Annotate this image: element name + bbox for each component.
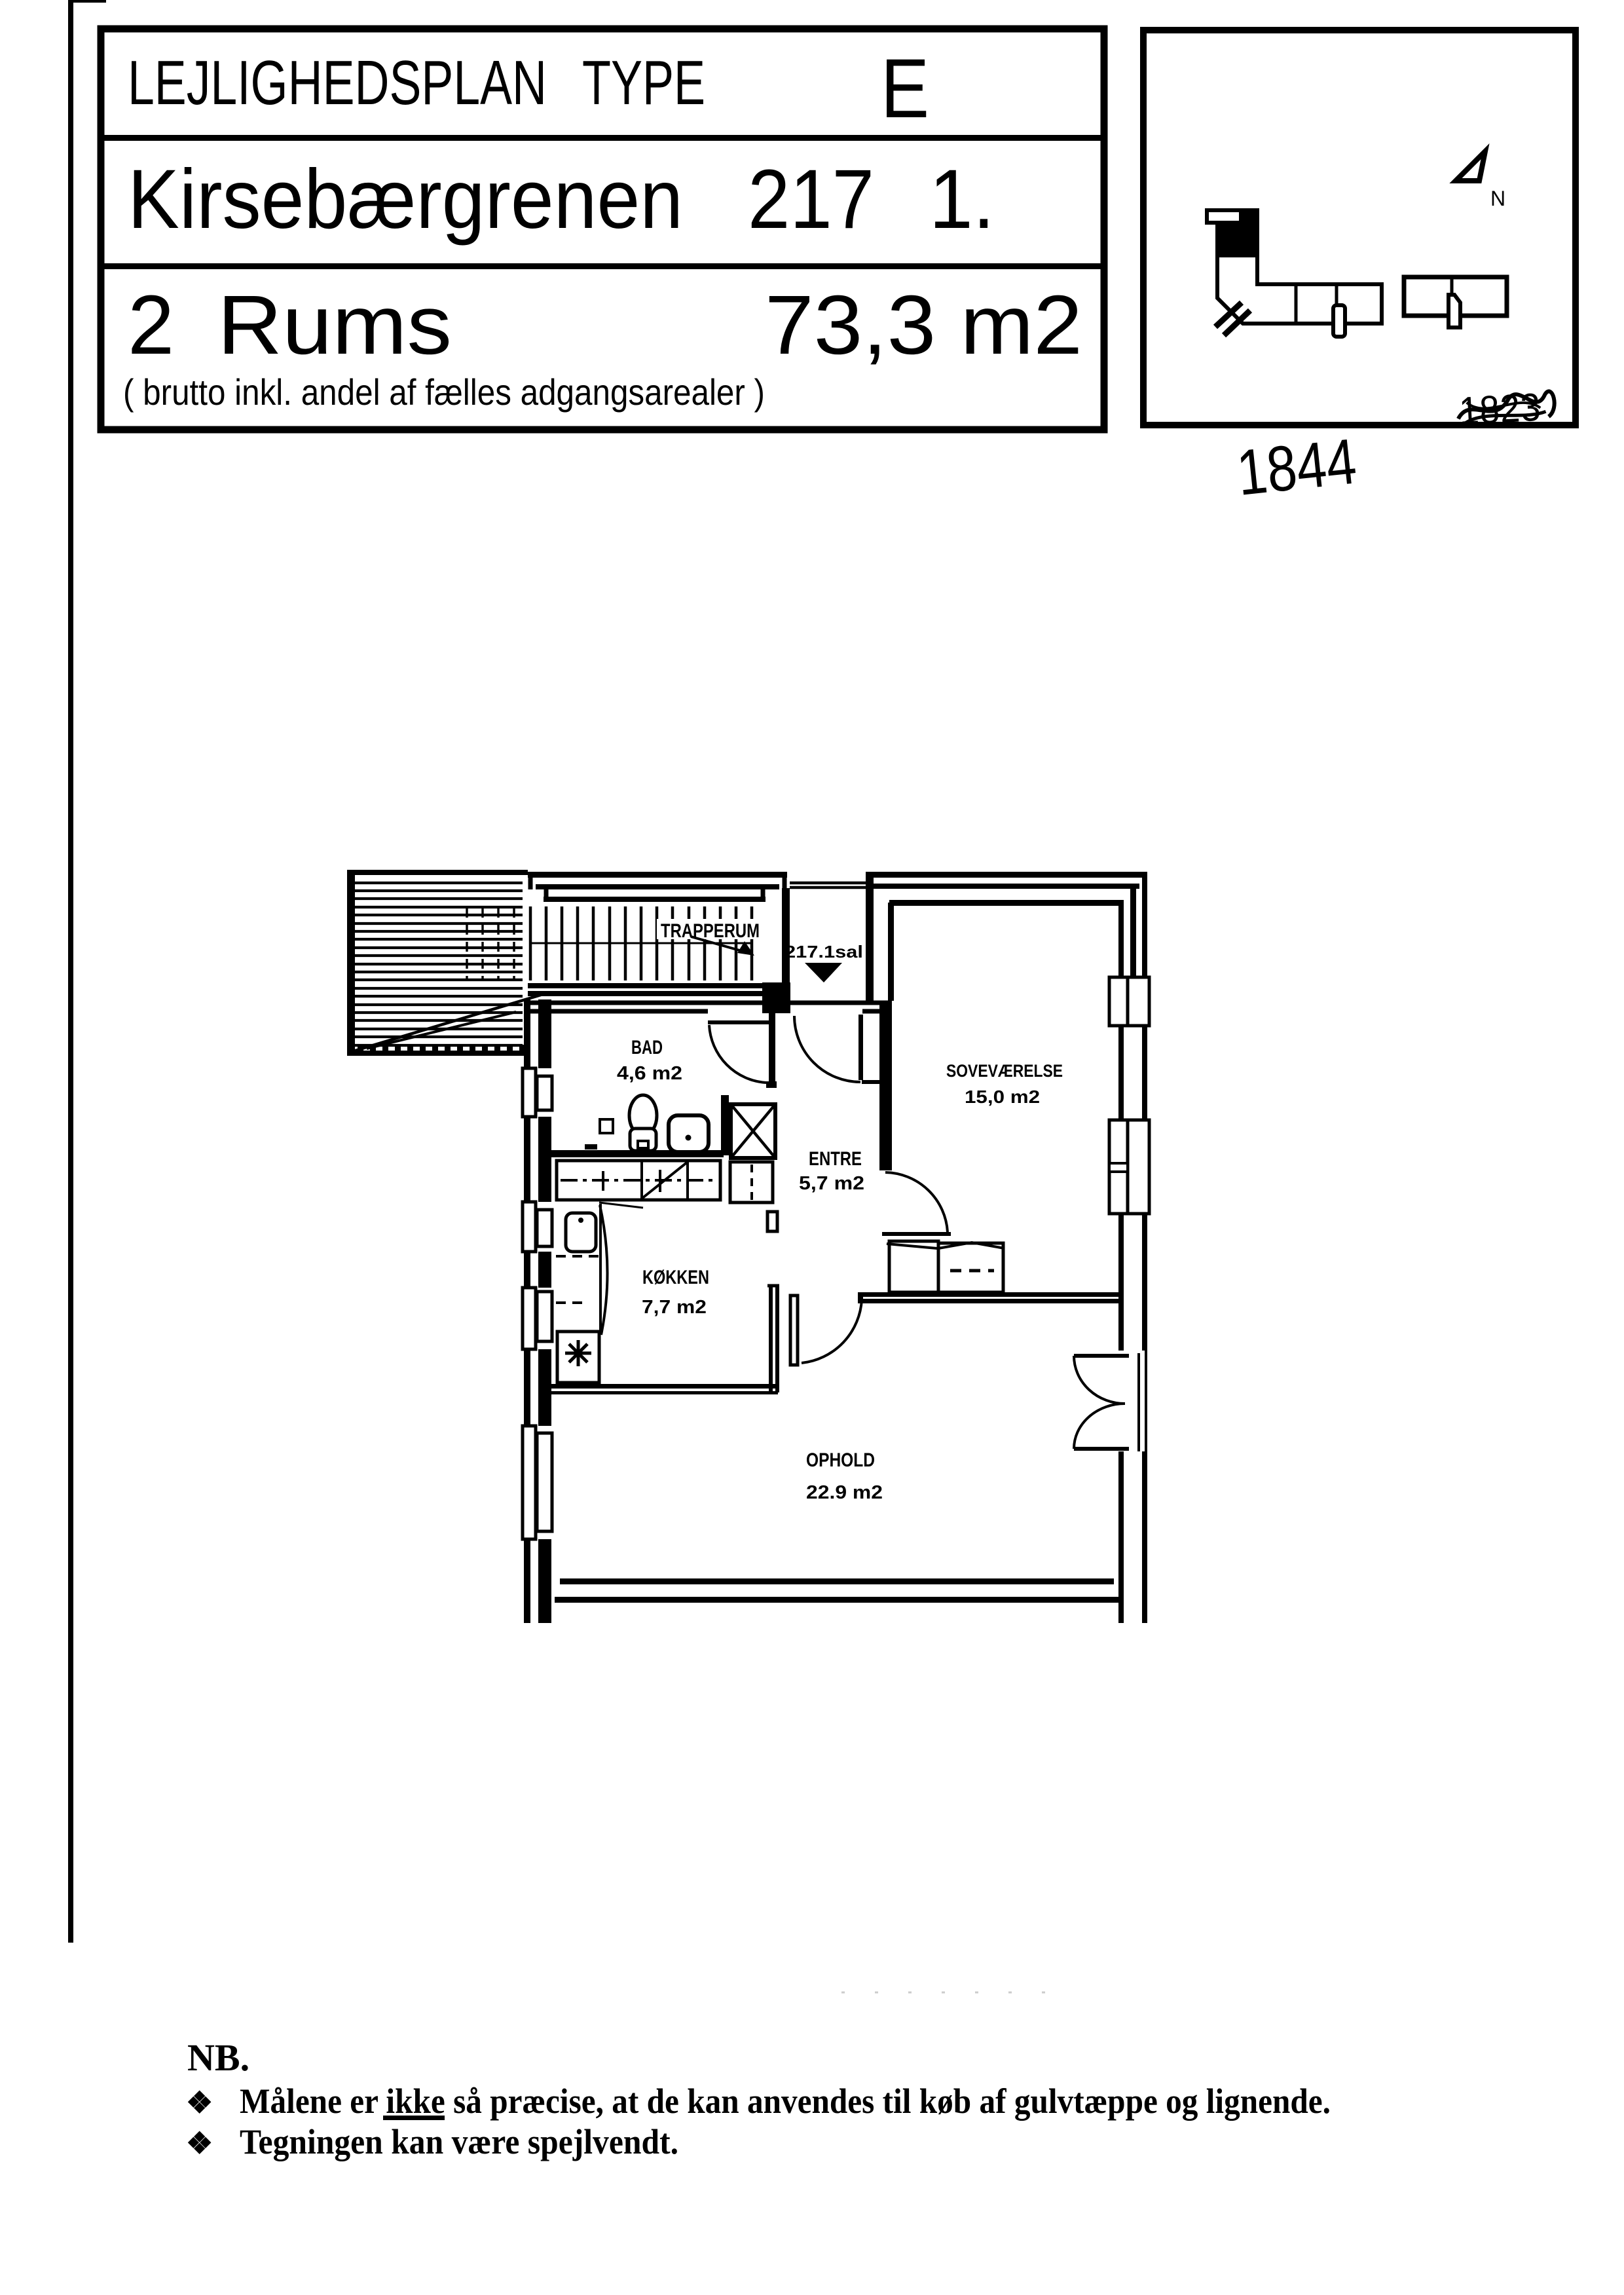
svg-text:Rums: Rums (217, 278, 452, 372)
svg-text:NB.: NB. (187, 2036, 249, 2079)
svg-text:4,6 m2: 4,6 m2 (617, 1063, 682, 1084)
svg-text:2: 2 (128, 278, 174, 372)
svg-text:❖: ❖ (186, 2127, 213, 2160)
svg-text:❖: ❖ (186, 2086, 213, 2119)
svg-text:5,7 m2: 5,7 m2 (799, 1173, 864, 1194)
svg-text:1844: 1844 (1234, 424, 1360, 508)
svg-text:LEJLIGHEDSPLAN: LEJLIGHEDSPLAN (128, 48, 547, 118)
svg-text:( brutto inkl. andel af fælles: ( brutto inkl. andel af fælles adgangsar… (123, 371, 765, 413)
svg-text:7,7 m2: 7,7 m2 (642, 1297, 707, 1318)
svg-text:E: E (881, 42, 929, 136)
svg-text:OPHOLD: OPHOLD (806, 1449, 875, 1471)
svg-text:SOVEVÆRELSE: SOVEVÆRELSE (946, 1061, 1063, 1081)
svg-text:Kirsebærgrenen: Kirsebærgrenen (128, 153, 683, 246)
svg-text:217: 217 (748, 153, 874, 246)
svg-text:KØKKEN: KØKKEN (642, 1267, 709, 1288)
svg-text:TYPE: TYPE (582, 48, 705, 118)
svg-text:15,0 m2: 15,0 m2 (965, 1087, 1040, 1107)
svg-text:Tegningen kan være spejlvendt.: Tegningen kan være spejlvendt. (240, 2122, 678, 2161)
svg-text:ENTRE: ENTRE (809, 1148, 862, 1170)
svg-text:217.1sal: 217.1sal (784, 942, 863, 961)
svg-text:TRAPPERUM: TRAPPERUM (661, 920, 760, 942)
svg-text:1.: 1. (929, 153, 995, 246)
svg-text:BAD: BAD (631, 1037, 663, 1058)
svg-text:73,3 m2: 73,3 m2 (765, 278, 1082, 372)
svg-text:22.9 m2: 22.9 m2 (806, 1482, 883, 1503)
svg-text:Målene er ikke så præcise, at: Målene er ikke så præcise, at de kan anv… (240, 2081, 1331, 2121)
svg-text:N: N (1490, 187, 1505, 210)
